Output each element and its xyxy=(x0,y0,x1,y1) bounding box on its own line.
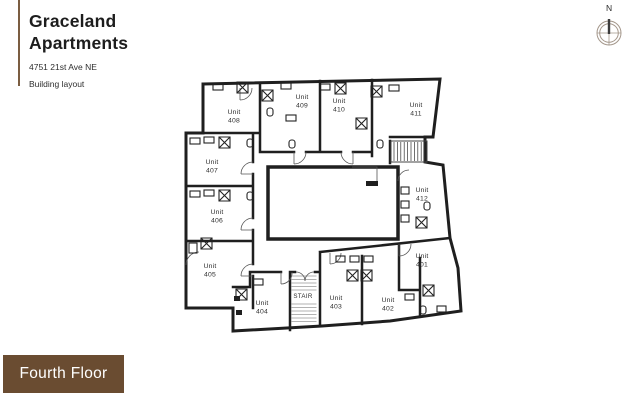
unit-label-404: Unit 404 xyxy=(256,300,269,316)
unit-label-411: Unit 411 xyxy=(410,102,423,118)
svg-text:Unit: Unit xyxy=(211,209,224,216)
svg-text:410: 410 xyxy=(333,107,345,114)
unit-label-405: Unit 405 xyxy=(204,263,217,279)
svg-text:Unit: Unit xyxy=(256,300,269,307)
compass-north-label: N xyxy=(606,3,612,13)
svg-text:Unit: Unit xyxy=(296,94,309,101)
unit-label-408: Unit 408 xyxy=(228,109,241,125)
svg-text:406: 406 xyxy=(211,218,223,225)
stairs-top xyxy=(391,141,427,162)
svg-text:Unit: Unit xyxy=(204,263,217,270)
svg-text:407: 407 xyxy=(206,168,218,175)
svg-text:Unit: Unit xyxy=(333,98,346,105)
unit-label-406: Unit 406 xyxy=(211,209,224,225)
unit-label-402: Unit 402 xyxy=(382,297,395,313)
svg-text:401: 401 xyxy=(416,262,428,269)
svg-text:Unit: Unit xyxy=(416,253,429,260)
svg-text:404: 404 xyxy=(256,309,268,316)
svg-text:412: 412 xyxy=(416,196,428,203)
svg-text:Unit: Unit xyxy=(228,109,241,116)
wall-block-icons xyxy=(234,296,242,315)
svg-text:Unit: Unit xyxy=(382,297,395,304)
svg-text:Unit: Unit xyxy=(330,295,343,302)
svg-text:Unit: Unit xyxy=(416,187,429,194)
svg-text:411: 411 xyxy=(410,111,421,118)
svg-text:409: 409 xyxy=(296,103,308,110)
compass-icon: N xyxy=(597,3,621,45)
unit-label-407: Unit 407 xyxy=(206,159,219,175)
svg-text:403: 403 xyxy=(330,304,342,311)
svg-text:405: 405 xyxy=(204,272,216,279)
unit-label-412: Unit 412 xyxy=(416,187,429,203)
svg-text:Unit: Unit xyxy=(410,102,423,109)
svg-text:408: 408 xyxy=(228,118,240,125)
svg-text:Unit: Unit xyxy=(206,159,219,166)
central-courtyard xyxy=(268,167,398,239)
svg-text:402: 402 xyxy=(382,306,394,313)
floor-plan: N STAIR xyxy=(0,0,640,415)
stair-label: STAIR xyxy=(293,293,312,300)
unit-label-403: Unit 403 xyxy=(330,295,343,311)
unit-label-410: Unit 410 xyxy=(333,98,346,114)
unit-label-401: Unit 401 xyxy=(416,253,429,269)
unit-label-409: Unit 409 xyxy=(296,94,309,110)
stairs-bottom: STAIR xyxy=(292,276,317,322)
